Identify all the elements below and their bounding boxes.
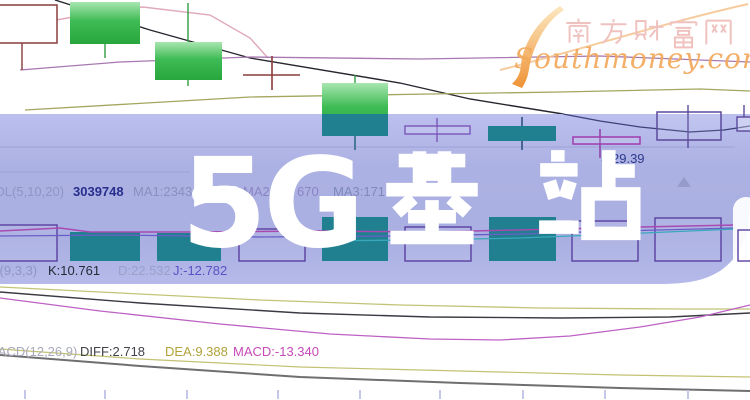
cjk-glyph-ji (357, 146, 507, 250)
candle-hollow (737, 117, 750, 131)
volume-label: VOL(5,10,20) (0, 184, 64, 199)
stock-chart-screenshot: VOL(5,10,20) 3039748 MA1:2343 MA2:2 670 … (0, 0, 750, 400)
macd-value: MACD:-13.340 (233, 344, 319, 359)
volume-bar (70, 232, 140, 261)
macd-label: MACD(12,26,9) (0, 344, 77, 359)
watermark-title-latin: 5G (181, 152, 361, 256)
site-url: Southmoney.com (514, 42, 750, 75)
candle-hollow (0, 5, 57, 43)
watermark-title: 5G 基站 (181, 146, 671, 252)
candle-doji (573, 137, 640, 144)
volume-value: 3039748 (73, 184, 124, 199)
kdj-line-k (0, 292, 750, 318)
macd-dea-value: DEA:9.388 (165, 344, 228, 359)
candle-green (70, 2, 140, 44)
kdj-k-value: K:10.761 (48, 263, 100, 278)
kdj-d-value: D:22.532 (118, 263, 171, 278)
candle-hollow (657, 112, 721, 140)
site-logo: 南方财富网 Southmoney.com (500, 2, 750, 90)
kdj-indicator-row: KDJ(9,3,3) K:10.761 D:22.532 J:-12.782 (0, 263, 750, 280)
kdj-line-d (0, 287, 750, 309)
cjk-glyph-zhan (515, 146, 661, 250)
candle-doji (405, 126, 470, 134)
candle-teal (488, 126, 556, 141)
kdj-label: KDJ(9,3,3) (0, 263, 37, 278)
candle-green (155, 42, 222, 80)
macd-diff-value: DIFF:2.718 (80, 344, 145, 359)
macd-indicator-row: MACD(12,26,9) DIFF:2.718 DEA:9.388 MACD:… (0, 344, 750, 361)
volume-bar-hollow (738, 230, 750, 261)
